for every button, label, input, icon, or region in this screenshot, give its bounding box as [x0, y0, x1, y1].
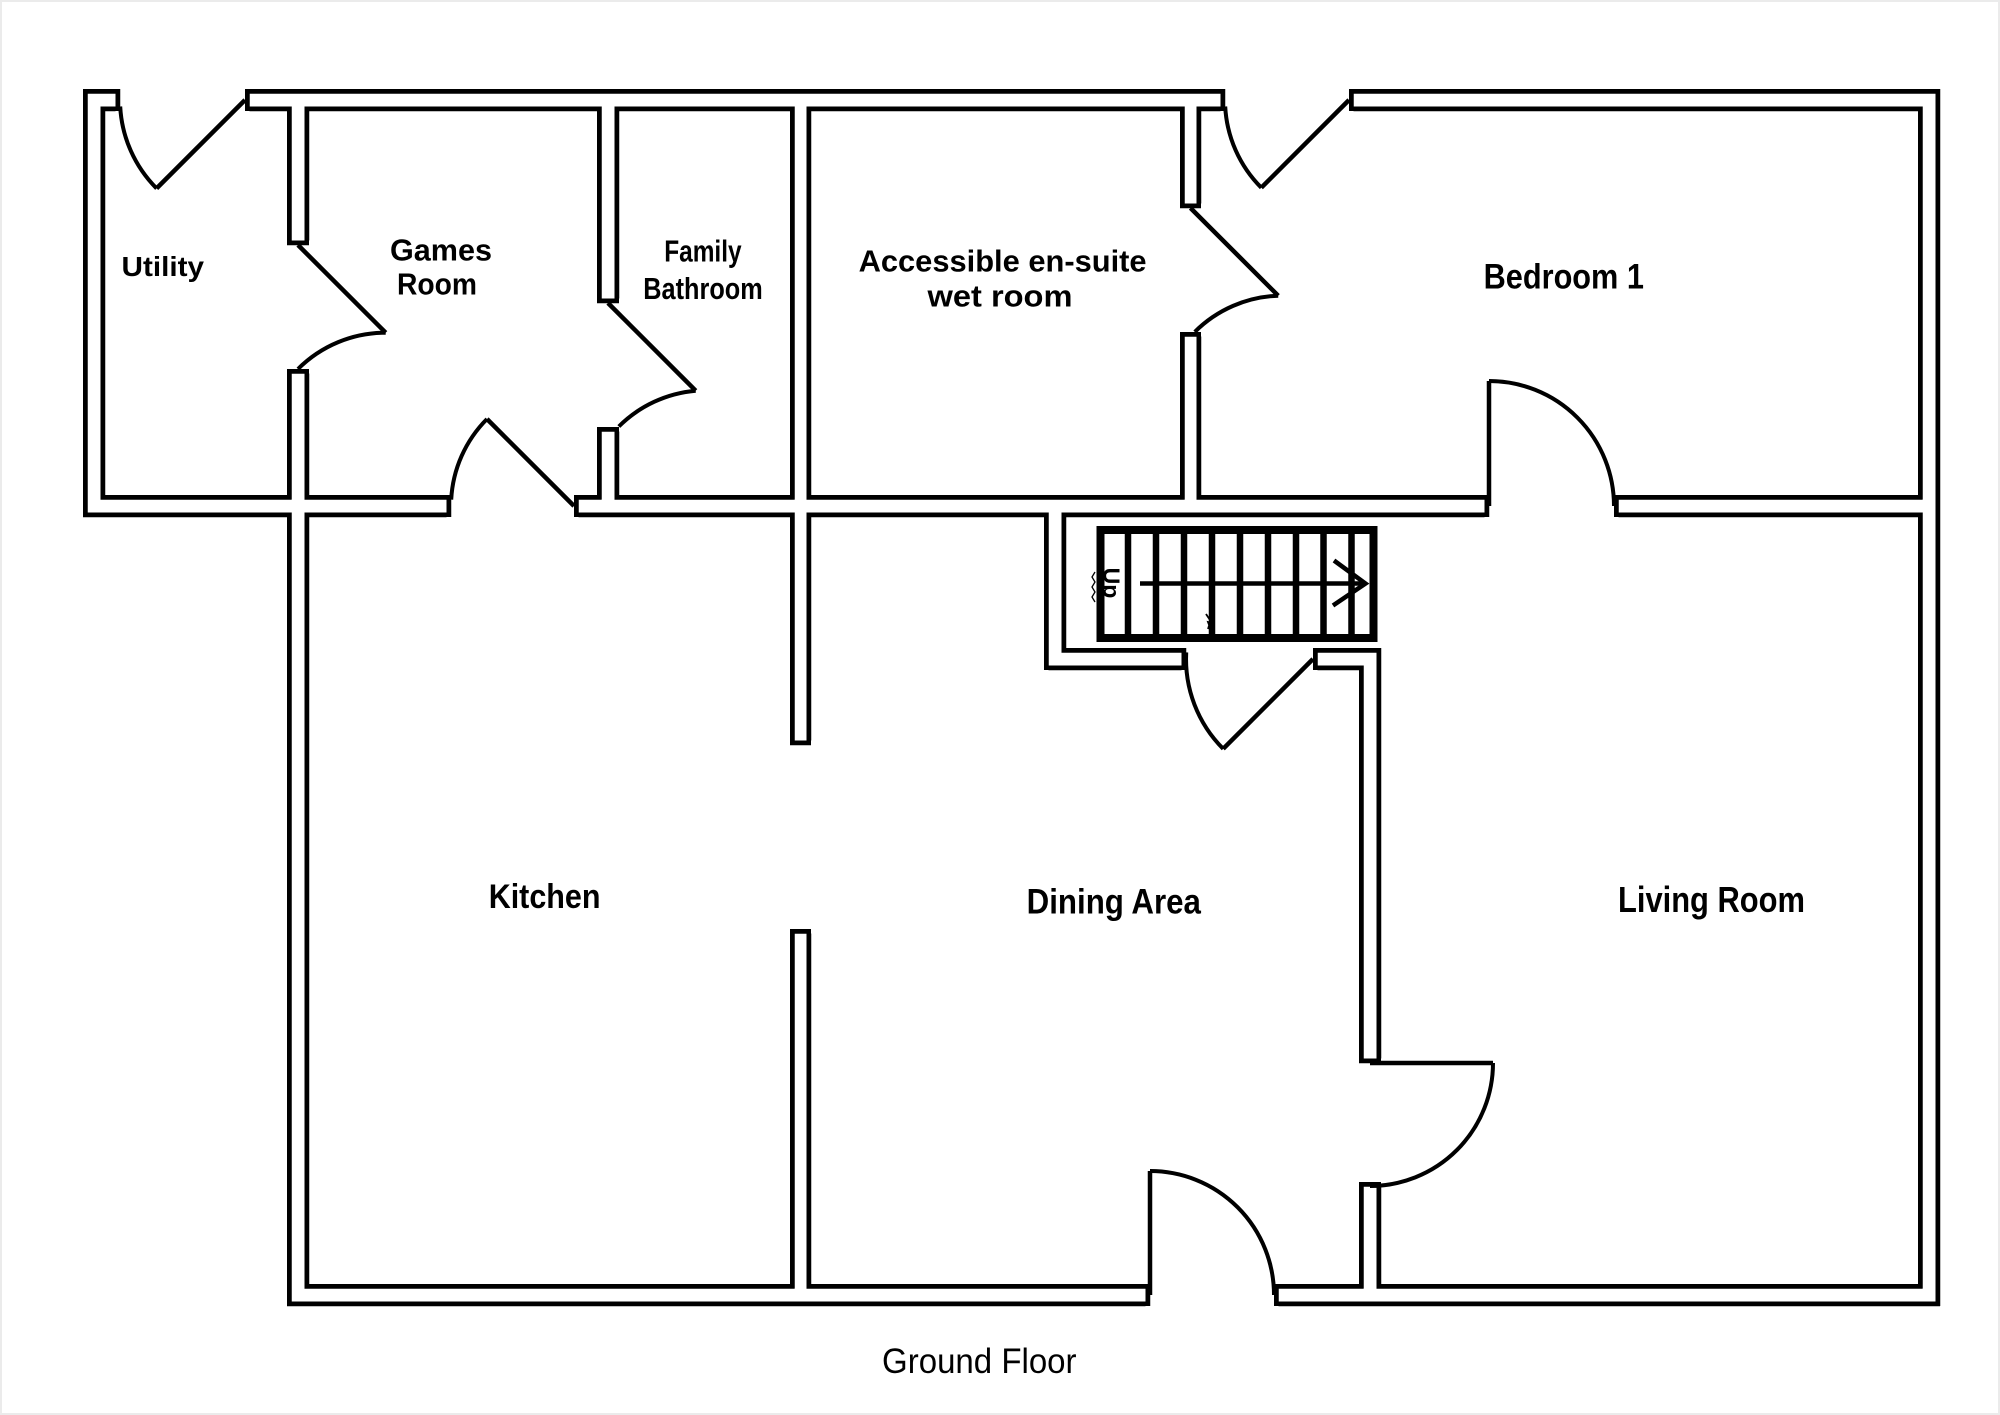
svg-text:Bedroom 1: Bedroom 1: [1484, 257, 1644, 296]
svg-text:Dining Area: Dining Area: [1027, 882, 1202, 921]
svg-text:Up: Up: [1099, 568, 1125, 599]
svg-text:GamesRoom: GamesRoom: [390, 233, 492, 302]
svg-text:Ground Floor: Ground Floor: [882, 1342, 1077, 1381]
svg-text:Utility: Utility: [122, 251, 205, 282]
svg-text:Living Room: Living Room: [1618, 879, 1805, 920]
svg-text:Kitchen: Kitchen: [489, 878, 601, 916]
